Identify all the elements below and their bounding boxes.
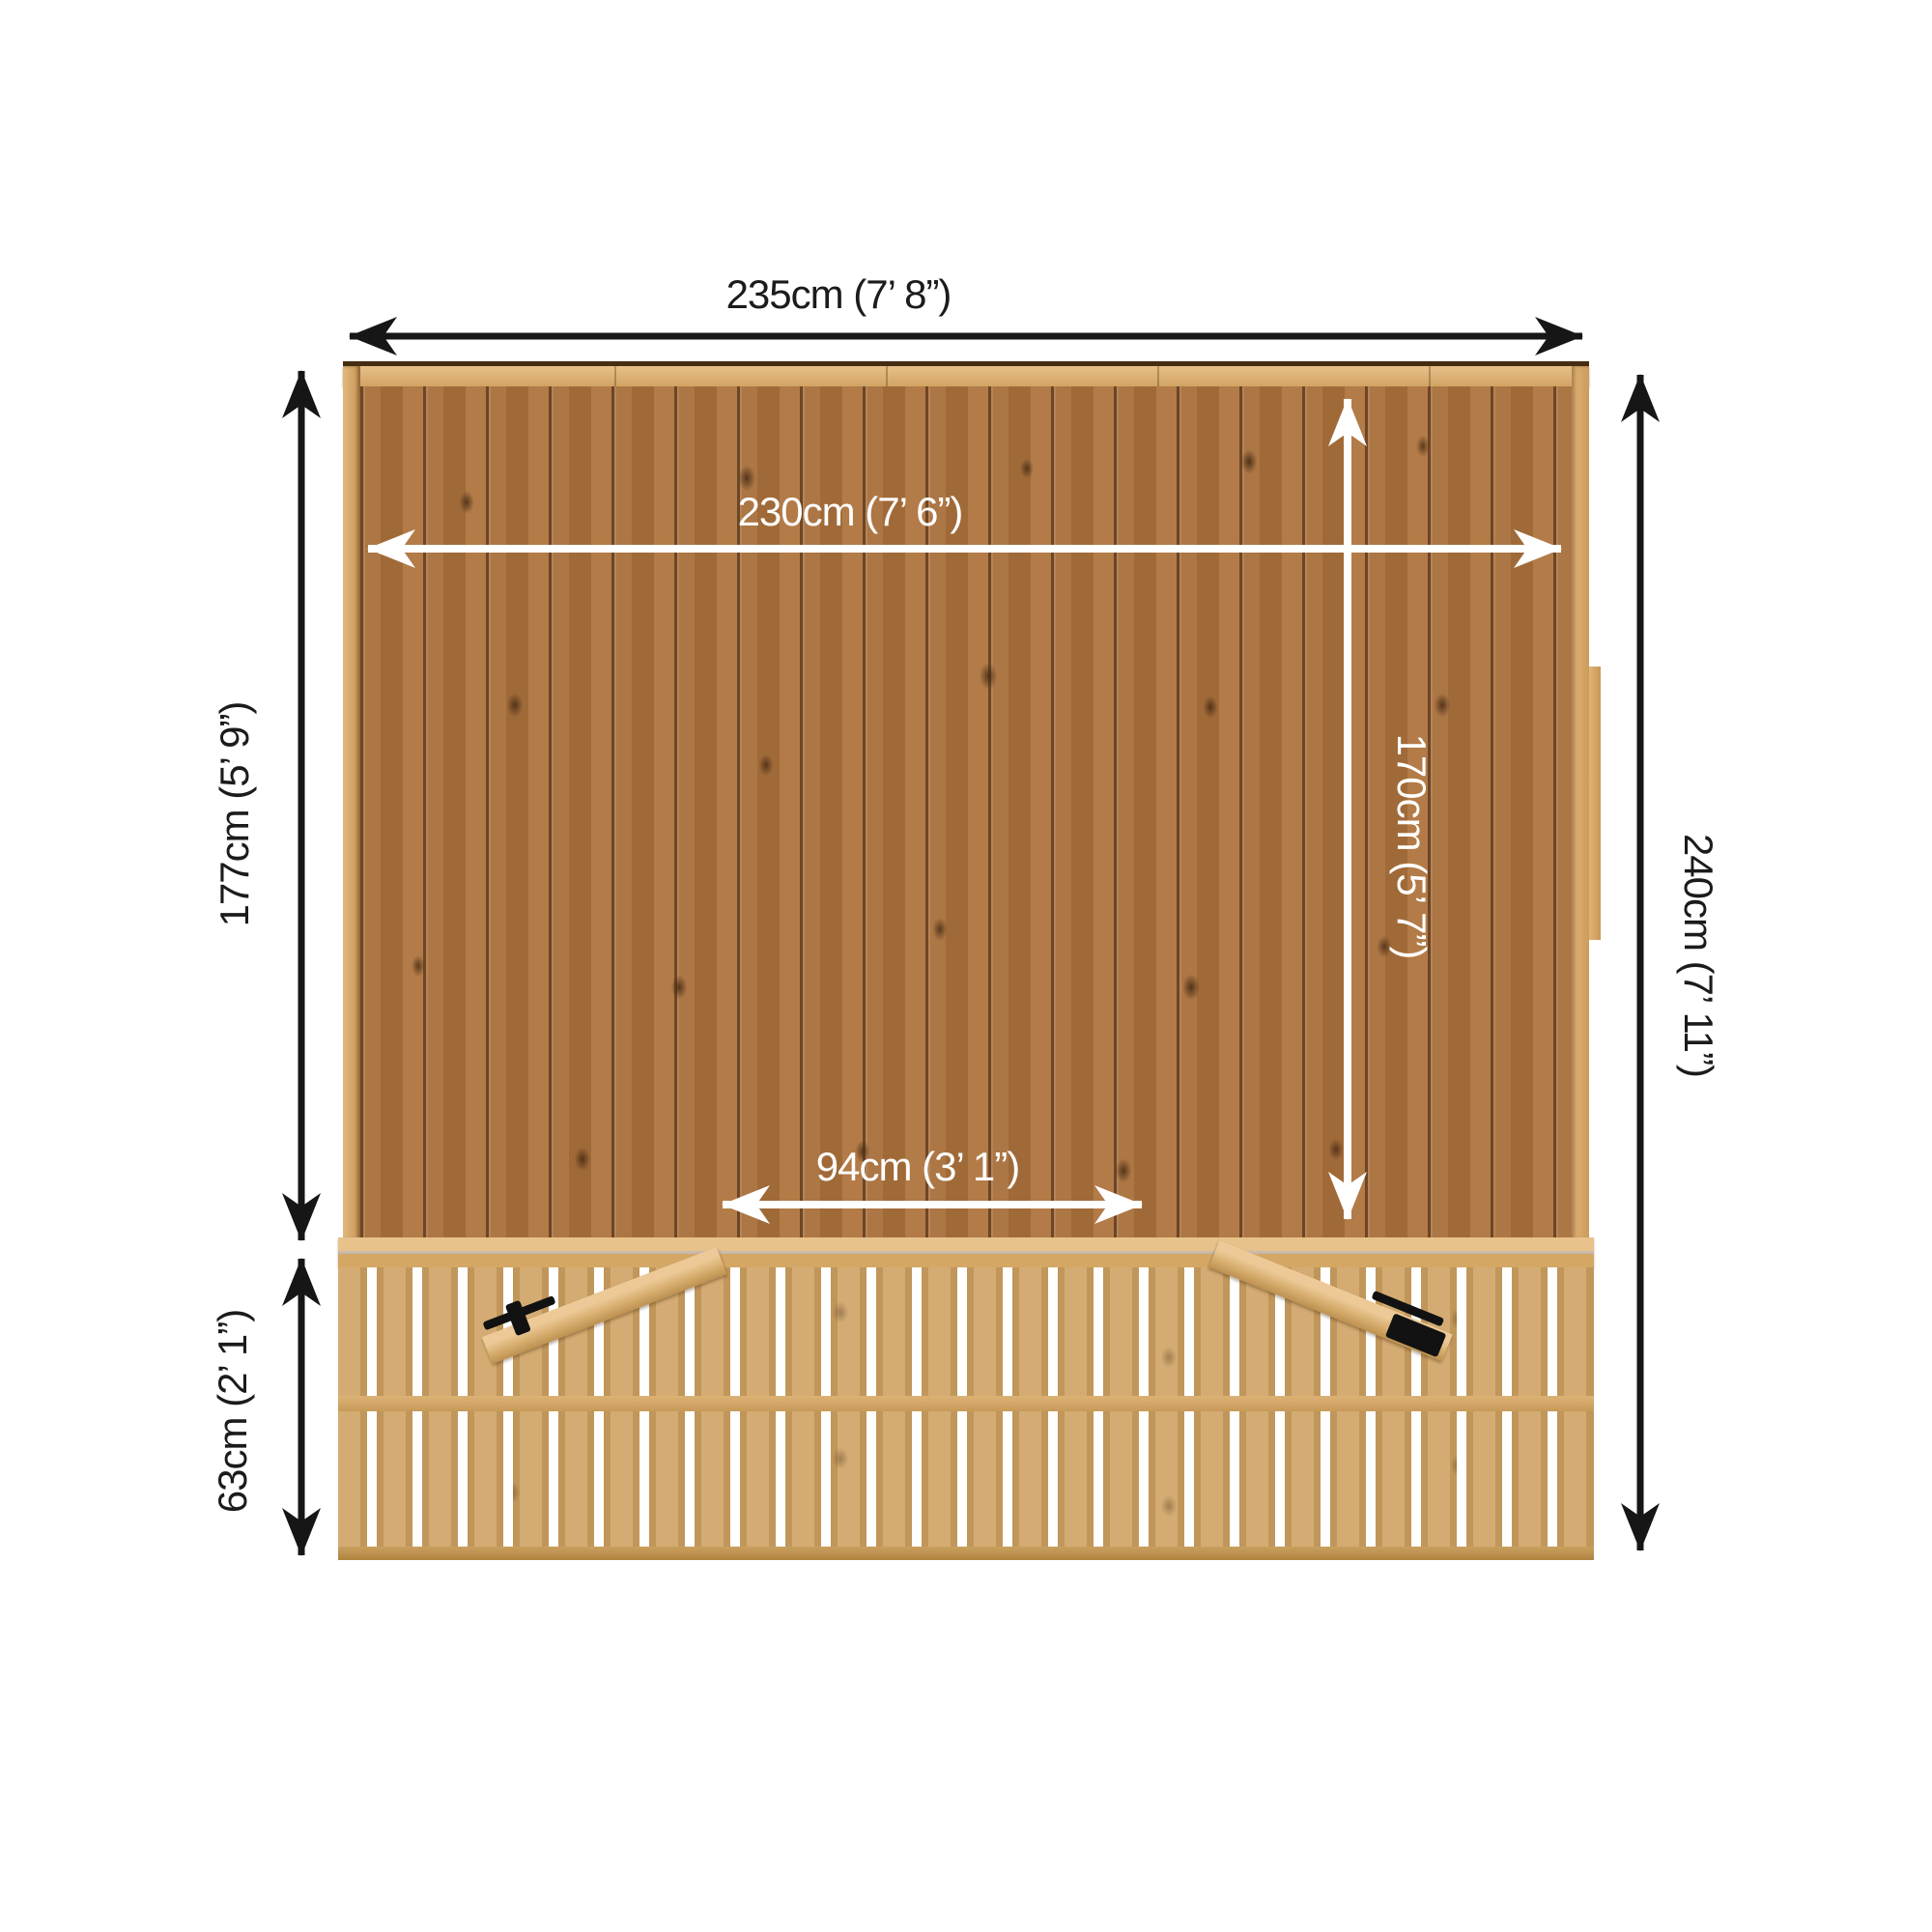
label-internal-width: 230cm (7’ 6”) [738,489,963,535]
dimension-diagram: 235cm (7’ 8”) 230cm (7’ 6”) 177cm (5’ 9”… [0,0,1932,1932]
fence-bottom-rail [338,1547,1594,1560]
wall-left-trim [343,366,360,1239]
label-overall-width: 235cm (7’ 8”) [726,271,952,318]
label-internal-height: 170cm (5’ 7”) [1388,734,1435,959]
wall-right-trim [1572,366,1589,1239]
side-bar-ledge [1589,667,1601,940]
wall-top-rail [343,366,1589,386]
wall-sill [338,1237,1594,1267]
label-overall-height: 240cm (7’ 11”) [1675,834,1721,1077]
fence-lower-slats [338,1411,1594,1547]
label-wall-height: 177cm (5’ 9”) [212,702,258,927]
fence-mid-rail [338,1396,1594,1411]
label-base-height: 63cm (2’ 1”) [210,1310,256,1514]
label-hatch-width: 94cm (3’ 1”) [816,1144,1020,1190]
